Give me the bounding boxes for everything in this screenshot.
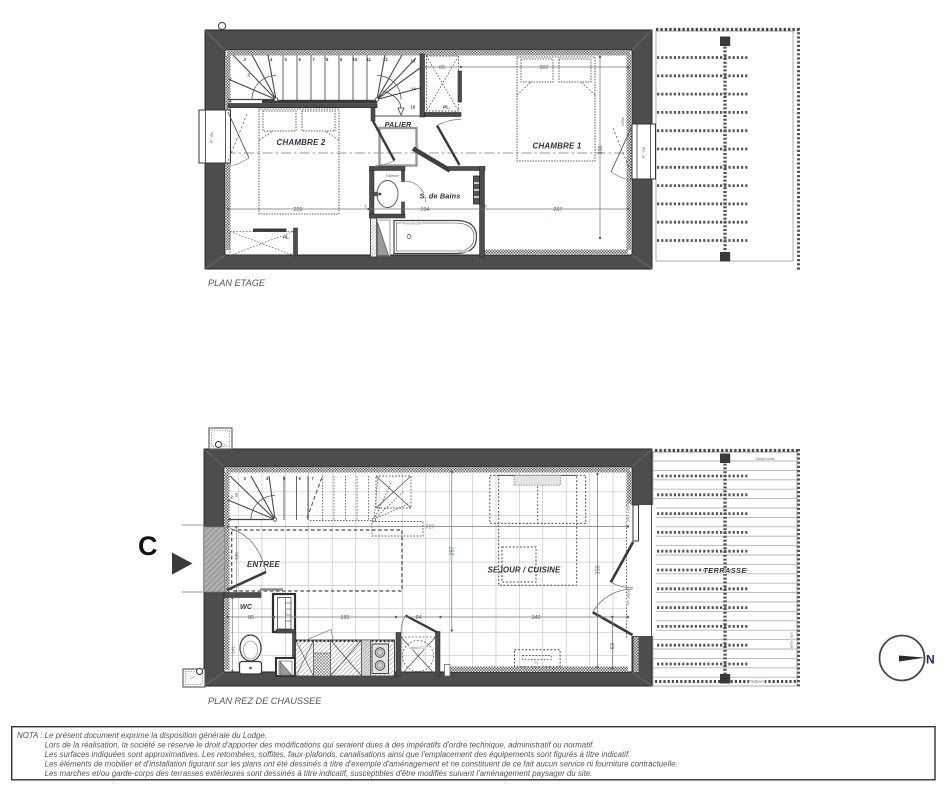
- svg-text:CHAMBRE 2: CHAMBRE 2: [277, 138, 326, 147]
- svg-text:F. -Av.: F. -Av.: [209, 131, 214, 142]
- svg-text:130: 130: [234, 552, 239, 560]
- svg-text:85: 85: [248, 615, 254, 621]
- svg-text:13: 13: [411, 59, 416, 64]
- svg-text:Pare-douche: Pare-douche: [403, 221, 421, 225]
- svg-text:N: N: [926, 653, 935, 667]
- svg-text:Les éléments de mobilier et d': Les éléments de mobilier et d'installati…: [45, 759, 678, 768]
- svg-text:C: C: [138, 531, 158, 561]
- svg-text:194: 194: [420, 207, 429, 213]
- svg-text:ballon ECS: ballon ECS: [410, 646, 428, 650]
- svg-text:PLAN REZ DE CHAUSSEE: PLAN REZ DE CHAUSSEE: [208, 696, 322, 706]
- svg-text:F. -Av.: F. -Av.: [641, 146, 646, 157]
- svg-text:12: 12: [383, 57, 388, 62]
- svg-text:255: 255: [293, 207, 302, 213]
- svg-text:NOTA : Le présent document exp: NOTA : Le présent document exprime la di…: [17, 731, 267, 740]
- svg-text:2Vtx 1.05m: 2Vtx 1.05m: [627, 504, 631, 523]
- svg-text:330: 330: [598, 145, 604, 154]
- svg-text:PF. Séjour: PF. Séjour: [627, 588, 631, 605]
- svg-text:11: 11: [367, 57, 372, 62]
- svg-text:WC: WC: [240, 602, 253, 611]
- svg-text:141: 141: [230, 646, 235, 654]
- svg-text:CF: CF: [222, 444, 227, 448]
- svg-text:53: 53: [610, 643, 616, 649]
- svg-text:Les surfaces indiquées sont ap: Les surfaces indiquées sont approximativ…: [45, 750, 631, 759]
- svg-text:14: 14: [411, 87, 416, 92]
- svg-text:Faïence: Faïence: [456, 249, 468, 253]
- svg-text:350: 350: [595, 565, 601, 574]
- svg-text:CF: CF: [190, 676, 195, 680]
- svg-text:S. de Bains: S. de Bains: [420, 192, 461, 201]
- svg-text:Les marches et/ou garde-corps: Les marches et/ou garde-corps des terras…: [45, 769, 593, 778]
- svg-text:PL.: PL.: [443, 105, 450, 110]
- svg-text:88: 88: [234, 492, 239, 497]
- svg-text:Garde-corps: Garde-corps: [790, 632, 794, 650]
- svg-text:15: 15: [411, 105, 416, 110]
- svg-text:267: 267: [553, 207, 562, 213]
- svg-text:PLAN ETAGE: PLAN ETAGE: [208, 278, 266, 288]
- svg-text:10: 10: [353, 57, 358, 62]
- svg-text:CHAMBRE 1: CHAMBRE 1: [533, 142, 582, 151]
- svg-text:Pare-vues: Pare-vues: [749, 680, 765, 684]
- svg-text:Garde-corps: Garde-corps: [756, 457, 775, 461]
- svg-text:TERRASSE: TERRASSE: [703, 566, 747, 575]
- svg-text:287: 287: [450, 546, 456, 555]
- svg-text:727: 727: [425, 524, 434, 530]
- svg-text:340: 340: [531, 615, 540, 621]
- svg-text:88: 88: [246, 72, 251, 77]
- svg-text:PL.: PL.: [283, 235, 290, 240]
- svg-text:Faïence: Faïence: [386, 174, 399, 178]
- svg-text:65: 65: [439, 65, 445, 71]
- svg-text:183: 183: [340, 615, 349, 621]
- svg-text:WRm: WRm: [621, 117, 625, 126]
- svg-text:Lors de la réalisation, la soc: Lors de la réalisation, la société se ré…: [45, 740, 595, 749]
- svg-text:TV: TV: [534, 661, 539, 665]
- svg-text:84: 84: [415, 615, 421, 621]
- svg-text:307: 307: [539, 65, 548, 71]
